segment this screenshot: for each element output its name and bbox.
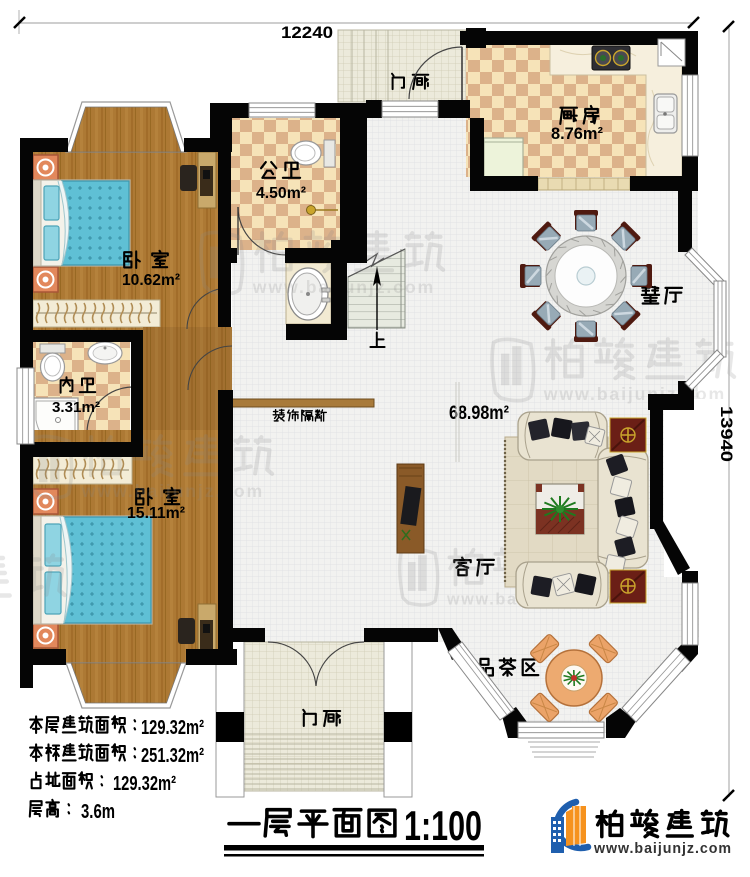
svg-text:3.6m: 3.6m bbox=[81, 801, 115, 823]
svg-text:3.31m²: 3.31m² bbox=[52, 399, 100, 416]
svg-text:www.baijunjz.com: www.baijunjz.com bbox=[593, 840, 732, 857]
svg-text:12240: 12240 bbox=[281, 23, 333, 42]
svg-text:1:100: 1:100 bbox=[404, 802, 482, 849]
svg-text:129.32m²: 129.32m² bbox=[141, 717, 204, 739]
svg-text:129.32m²: 129.32m² bbox=[113, 773, 176, 795]
svg-text:13940: 13940 bbox=[717, 406, 736, 462]
svg-text:10.62m²: 10.62m² bbox=[122, 272, 180, 289]
svg-text:8.76m²: 8.76m² bbox=[551, 124, 603, 143]
svg-text:68.98m²: 68.98m² bbox=[449, 403, 509, 424]
svg-text:251.32m²: 251.32m² bbox=[141, 745, 204, 767]
svg-text:www.baijunjz.com: www.baijunjz.com bbox=[81, 481, 264, 501]
svg-text:15.11m²: 15.11m² bbox=[127, 505, 185, 522]
svg-text:4.50m²: 4.50m² bbox=[256, 185, 306, 202]
